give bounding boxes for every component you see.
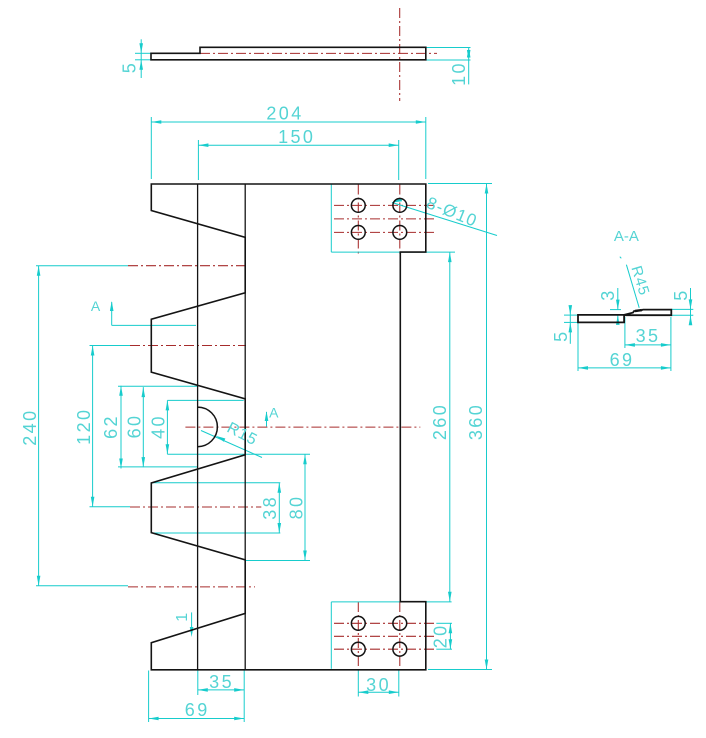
svg-text:69: 69 xyxy=(610,350,635,370)
svg-text:260: 260 xyxy=(430,403,450,440)
svg-text:1: 1 xyxy=(174,613,191,622)
svg-text:A-A: A-A xyxy=(614,228,639,245)
svg-text:80: 80 xyxy=(287,495,307,520)
svg-text:60: 60 xyxy=(124,414,144,439)
svg-text:20: 20 xyxy=(431,623,451,648)
svg-text:5: 5 xyxy=(671,288,691,300)
svg-text:3: 3 xyxy=(598,288,618,300)
svg-text:69: 69 xyxy=(185,700,210,720)
svg-text:120: 120 xyxy=(74,408,94,445)
svg-text:30: 30 xyxy=(366,675,391,695)
svg-text:62: 62 xyxy=(101,414,121,439)
svg-text:35: 35 xyxy=(209,672,234,692)
svg-text:150: 150 xyxy=(278,127,315,147)
svg-text:40: 40 xyxy=(148,414,168,439)
svg-text:240: 240 xyxy=(20,408,40,445)
svg-text:360: 360 xyxy=(466,403,486,440)
svg-text:5: 5 xyxy=(119,61,139,73)
svg-text:204: 204 xyxy=(266,104,303,124)
svg-text:A: A xyxy=(91,298,101,314)
svg-text:38: 38 xyxy=(260,495,280,520)
svg-text:35: 35 xyxy=(636,326,661,346)
svg-text:5: 5 xyxy=(551,329,571,341)
svg-text:10: 10 xyxy=(449,61,469,86)
svg-text:A: A xyxy=(269,405,279,421)
